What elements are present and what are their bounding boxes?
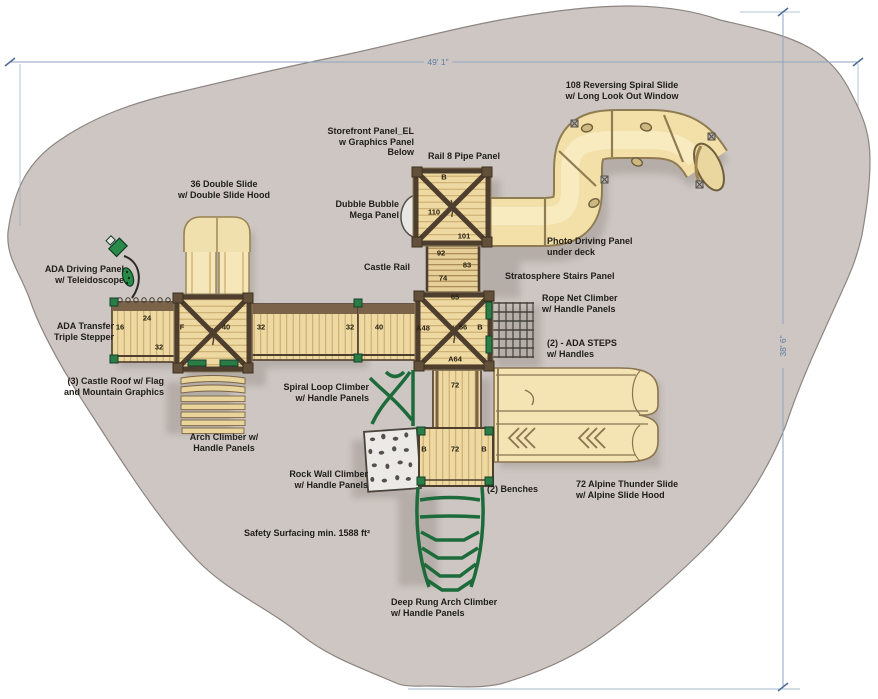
rock-wall-climber <box>364 428 421 492</box>
label-dubble-bubble: Dubble Bubble Mega Panel <box>336 199 400 220</box>
panel-letter-f: F <box>180 323 185 332</box>
stair-number-83: 83 <box>463 261 471 270</box>
panel-number-b-roof: B <box>441 173 446 182</box>
dimension-width: 49' 1" <box>427 57 448 67</box>
bridge-number-32: 32 <box>257 323 265 332</box>
deck-number-110: 110 <box>428 208 440 217</box>
alpine-thunder-slide <box>494 368 658 462</box>
walkway-south <box>433 370 481 430</box>
deck-number-72-lower: 72 <box>451 445 459 454</box>
label-storefront-panel: Storefront Panel_EL w Graphics Panel Bel… <box>327 126 414 158</box>
label-castle-rail: Castle Rail <box>364 262 410 273</box>
walkway-east <box>358 304 416 360</box>
label-rock-wall-climber: Rock Wall Climber w/ Handle Panels <box>289 469 368 490</box>
label-ada-steps: (2) - ADA STEPS w/ Handles <box>547 338 617 359</box>
playground-plan: 108 Reversing Spiral Slide w/ Long Look … <box>0 0 878 699</box>
dimension-height: 38' 6" <box>778 335 788 356</box>
stratosphere-stairs <box>427 246 479 292</box>
walkway-number-40: 40 <box>375 323 383 332</box>
label-alpine-slide: 72 Alpine Thunder Slide w/ Alpine Slide … <box>576 479 678 500</box>
stair-number-74: 74 <box>439 274 447 283</box>
deck-number-101: 101 <box>458 232 471 241</box>
label-deep-rung-climber: Deep Rung Arch Climber w/ Handle Panels <box>391 597 497 618</box>
panel-number-b-deck: B <box>477 323 482 332</box>
panel-number-b-right: B <box>481 445 486 454</box>
label-castle-roof: (3) Castle Roof w/ Flag and Mountain Gra… <box>64 376 164 397</box>
bottom-deck <box>419 428 493 486</box>
deck-number-56: 56 <box>459 323 467 332</box>
label-stratosphere-stairs: Stratosphere Stairs Panel <box>505 271 615 282</box>
stair-number-92: 92 <box>437 249 445 258</box>
ramp-number-16: 16 <box>116 323 124 332</box>
label-safety-surfacing: Safety Surfacing min. 1588 ft² <box>244 528 370 539</box>
bridge-walkway <box>252 304 358 360</box>
tower-number-40: 40 <box>222 323 230 332</box>
label-rope-net-climber: Rope Net Climber w/ Handle Panels <box>542 293 618 314</box>
label-rail-8-pipe-panel: Rail 8 Pipe Panel <box>428 151 500 162</box>
label-photo-driving-panel: Photo Driving Panel under deck <box>547 236 633 257</box>
ramp-number-24: 24 <box>143 314 151 323</box>
label-arch-climber: Arch Climber w/ Handle Panels <box>190 432 259 453</box>
ramp-number-32: 32 <box>155 343 163 352</box>
deck-number-a48: A48 <box>416 324 430 333</box>
panel-number-b-left: B <box>421 445 426 454</box>
deck-number-65: 65 <box>451 293 459 302</box>
label-benches: (2) Benches <box>487 484 538 495</box>
deck-number-a64: A64 <box>448 355 462 364</box>
label-reversing-spiral-slide: 108 Reversing Spiral Slide w/ Long Look … <box>566 80 679 101</box>
castle-roof-tower-top <box>412 167 492 247</box>
label-ada-transfer: ADA Transfer Triple Stepper <box>54 321 114 342</box>
label-ada-driving-panel: ADA Driving Panel w/ Teleidoscope <box>45 264 124 285</box>
label-spiral-loop-climber: Spiral Loop Climber w/ Handle Panels <box>283 382 369 403</box>
bridge-number-32b: 32 <box>346 323 354 332</box>
label-double-slide: 36 Double Slide w/ Double Slide Hood <box>178 179 270 200</box>
castle-roof-tower-left <box>173 293 253 373</box>
site-plan-canvas <box>0 0 878 699</box>
walkway-number-72: 72 <box>451 381 459 390</box>
